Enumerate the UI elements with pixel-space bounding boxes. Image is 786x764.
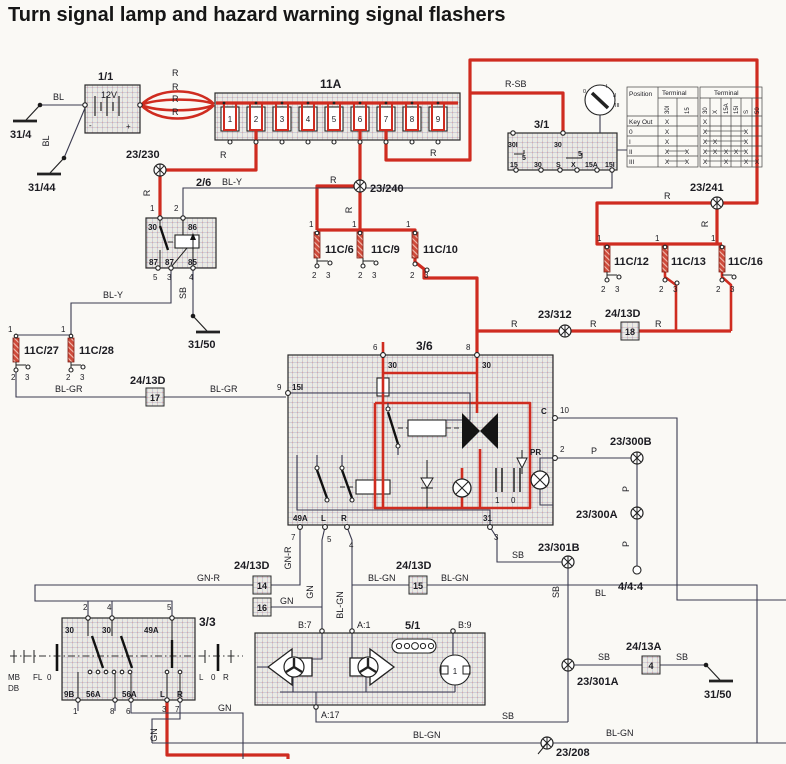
fuse-3: 3 (280, 115, 285, 124)
pin: 3 (167, 273, 172, 282)
mark: X (724, 149, 729, 156)
cluster-connector-strip (392, 639, 436, 653)
cap-0: 0 (511, 496, 516, 505)
fuse-5: 5 (332, 115, 337, 124)
node-23-241 (711, 197, 723, 209)
fuse-4: 4 (306, 115, 311, 124)
wire-label-r: R (172, 68, 179, 78)
flasher-coil-2 (356, 480, 390, 494)
node-label-23-240: 23/240 (370, 183, 404, 195)
table-row: II (629, 149, 633, 156)
terminal-4-4-4 (633, 566, 641, 574)
wire-label-gnr: GN-R (197, 573, 220, 583)
wire-label-gn: GN (218, 703, 232, 713)
wire-bly-relay-to-11c27 (16, 268, 171, 338)
relay-2-6-id: 2/6 (196, 177, 211, 189)
mark: X (665, 159, 670, 166)
mark: X (665, 139, 670, 146)
wire-label-bl: BL (53, 92, 64, 102)
pin: 1 (61, 325, 66, 334)
terminal-85: 85 (188, 258, 197, 267)
terminal-c: C (541, 407, 547, 416)
pin-a1: A:1 (357, 620, 371, 630)
pin: 3 (372, 271, 377, 280)
cluster-id: 5/1 (405, 620, 420, 632)
terminal-9b: 9B (64, 690, 74, 699)
wire-label-r: R (172, 107, 179, 117)
node-23-240 (354, 180, 366, 192)
pin: 1 (597, 234, 602, 243)
pin: 3 (730, 285, 735, 294)
battery-minus: - (89, 121, 92, 130)
battery-plus: + (126, 122, 131, 131)
table-col: 30 (703, 107, 709, 114)
label-mb: MB (8, 673, 20, 682)
pin: 2 (560, 445, 565, 454)
terminal-15a: 15A (585, 162, 598, 169)
pin: 6 (373, 343, 378, 352)
ground-31-44: 31/44 (28, 182, 56, 194)
terminal-30: 30 (482, 361, 491, 370)
ground-31-50-top-icon (193, 316, 220, 332)
pin: 8 (466, 343, 471, 352)
node-label-23-241: 23/241 (690, 182, 724, 194)
terminal-15i: 15I (292, 383, 303, 392)
wiring-diagram-page: Turn signal lamp and hazard warning sign… (0, 0, 786, 759)
mark: X (734, 149, 739, 156)
table-col: 30I (665, 105, 671, 114)
table-col: 50 (755, 107, 761, 114)
wire-label-r-rot: R (142, 189, 152, 196)
terminal-87: 87 (149, 258, 158, 267)
node-label-23-301b: 23/301B (538, 542, 580, 554)
fuse-2: 2 (254, 115, 259, 124)
pin: 3 (673, 285, 678, 294)
wire-label-p-rot: P (621, 541, 631, 547)
label-r: R (223, 673, 229, 682)
wire-label-r: R (172, 82, 179, 92)
inline-15: 15 (413, 581, 423, 591)
wire-label-gnr-rot: GN-R (283, 546, 293, 569)
pin: 1 (406, 220, 411, 229)
pin-b7: B:7 (298, 620, 312, 630)
label-11c28: 11C/28 (79, 345, 114, 357)
fuse-6: 6 (358, 115, 363, 124)
pin: 7 (291, 533, 296, 542)
pin: 7 (175, 705, 180, 714)
ground-31-50-top: 31/50 (188, 339, 216, 351)
terminal-56a: 56A (122, 690, 137, 699)
terminal-l: L (321, 514, 326, 523)
relay-2-6-coil (175, 235, 199, 248)
fuse-7: 7 (384, 115, 389, 124)
pin: 1 (309, 220, 314, 229)
wire-label-blgn: BL-GN (441, 573, 469, 583)
fuse-9: 9 (436, 115, 441, 124)
mark: X (703, 139, 708, 146)
fuse-1: 1 (228, 115, 233, 124)
terminal-31: 31 (483, 514, 492, 523)
wire-label-r: R (664, 191, 671, 201)
table-col: 15 (685, 107, 691, 114)
label-11c9: 11C/9 (371, 244, 400, 256)
flasher-id: 3/6 (416, 339, 433, 353)
pin: 9 (277, 383, 282, 392)
table-header-terminal: Terminal (714, 90, 739, 97)
node-label-23-301a: 23/301A (577, 676, 619, 688)
ground-31-4-icon (13, 105, 40, 121)
table-row: III (629, 159, 635, 166)
pin: 1 (352, 220, 357, 229)
terminal-5: 5 (578, 151, 582, 158)
label-24-13d: 24/13D (130, 375, 166, 387)
mark: X (744, 139, 749, 146)
mark: X (703, 149, 708, 156)
wire-label-sb: SB (598, 652, 610, 662)
inline-14: 14 (257, 581, 267, 591)
pin: 4 (349, 541, 354, 550)
wire-label-bl: BL (595, 588, 606, 598)
wire-label-sb-rot: SB (551, 586, 561, 598)
label-4-4-4: 4/4:4 (618, 581, 644, 593)
wire-label-blgr: BL-GR (55, 384, 83, 394)
pin: 2 (83, 603, 88, 612)
key-pos-2: II (613, 93, 617, 99)
fusebox-id: 11A (320, 77, 342, 91)
pin: 4 (189, 273, 194, 282)
node-23-300b (631, 452, 643, 464)
switch-3-3-id: 3/3 (199, 615, 216, 629)
pin: 5 (327, 535, 332, 544)
ground-31-50-bottom: 31/50 (704, 689, 732, 701)
wire-label-rsb: R-SB (505, 79, 527, 89)
flasher-lamp-2-icon (531, 471, 549, 489)
pin: 5 (153, 273, 158, 282)
pin: 1 (711, 234, 716, 243)
wire-sb-cluster-ground (316, 707, 568, 722)
mark: X (703, 129, 708, 136)
pin: 1 (73, 707, 78, 716)
terminal-pr: PR (530, 448, 541, 457)
wire-label-bly: BL-Y (222, 177, 242, 187)
pin: 2 (11, 373, 16, 382)
mark: X (665, 129, 670, 136)
pin: 3 (25, 373, 30, 382)
ignition-position-table (627, 87, 762, 167)
pin: 10 (560, 406, 569, 415)
connector-11c10 (412, 232, 418, 258)
flasher-lamp-icon (453, 479, 471, 497)
wire-label-p-rot: P (621, 486, 631, 492)
ground-31-50-bottom-icon (706, 665, 733, 681)
label-11c27: 11C/27 (24, 345, 59, 357)
mark: X (744, 159, 749, 166)
label-24-13a: 24/13A (626, 641, 662, 653)
connector-11c16 (719, 246, 725, 272)
wire-label-r: R (220, 150, 227, 160)
mark: X (724, 159, 729, 166)
label-l: L (199, 673, 204, 682)
page-title: Turn signal lamp and hazard warning sign… (8, 4, 506, 26)
inline-18: 18 (625, 327, 635, 337)
mark: X (713, 139, 718, 146)
mark: X (744, 149, 749, 156)
pin: 3 (615, 285, 620, 294)
key-pos-3: III (615, 103, 620, 109)
label-11c12: 11C/12 (614, 256, 649, 268)
table-col: 15I (734, 105, 740, 114)
wire-label-r: R (511, 319, 518, 329)
node-23-301b (562, 556, 574, 568)
terminal-30: 30 (102, 626, 111, 635)
pin-b9: B:9 (458, 620, 472, 630)
node-label-23-312: 23/312 (538, 309, 572, 321)
wiring-diagram: Turn signal lamp and hazard warning sign… (0, 0, 786, 759)
terminal-r: R (177, 690, 183, 699)
wire-label-blgn: BL-GN (368, 573, 396, 583)
terminal-30: 30 (388, 361, 397, 370)
node-label-23-300b: 23/300B (610, 436, 652, 448)
pin: 8 (110, 707, 115, 716)
terminal-30i: 30I (508, 142, 518, 149)
flasher-relay-coil (408, 420, 446, 436)
terminal-l: L (160, 690, 165, 699)
pin: 3 (424, 271, 429, 280)
inline-17: 17 (150, 393, 160, 403)
label-0: 0 (47, 673, 52, 682)
wire-label-blgn-rot: BL-GN (335, 591, 345, 619)
ground-31-4: 31/4 (10, 129, 32, 141)
ignition-id: 3/1 (534, 119, 549, 131)
wire-label-sb: SB (676, 652, 688, 662)
wire-label-r-rot: R (344, 206, 354, 213)
label-fl: FL (33, 673, 43, 682)
mark: X (685, 149, 690, 156)
terminal-30: 30 (554, 142, 562, 149)
mark: X (744, 129, 749, 136)
wire-label-sb: SB (512, 550, 524, 560)
pin: 2 (601, 285, 606, 294)
wire-label-blgn: BL-GN (606, 728, 634, 738)
terminal-30: 30 (65, 626, 74, 635)
node-23-230 (154, 164, 166, 176)
wire-label-r: R (430, 148, 437, 158)
wire-label-p: P (591, 446, 597, 456)
table-col: X (713, 110, 719, 114)
label-0: 0 (211, 673, 216, 682)
table-header-terminal: Terminal (662, 90, 687, 97)
node-label-23-300a: 23/300A (576, 509, 618, 521)
battery-id: 1/1 (98, 71, 113, 83)
terminal-r: R (341, 514, 347, 523)
mark: X (703, 159, 708, 166)
wire-label-sb: SB (502, 711, 514, 721)
wire-label-r: R (330, 175, 337, 185)
mark: X (755, 159, 760, 166)
connector-11c9 (357, 232, 363, 258)
node-23-312 (559, 325, 571, 337)
pin: 1 (655, 234, 660, 243)
label-24-13d: 24/13D (234, 560, 270, 572)
connector-11c12 (604, 246, 610, 272)
battery-voltage: 12V (101, 90, 117, 100)
terminal-5: 5 (522, 155, 526, 162)
table-col: S (744, 110, 750, 114)
wire-label-gn-rot: GN (149, 728, 159, 742)
pin: 3 (162, 705, 167, 714)
label-11c13: 11C/13 (671, 256, 706, 268)
mark: X (665, 149, 670, 156)
wire-gn-left (271, 527, 325, 631)
pin: 3 (80, 373, 85, 382)
gauge-1: 1 (453, 667, 458, 676)
node-23-301a (562, 659, 574, 671)
terminal-15: 15 (510, 162, 518, 169)
pin-a17: A:17 (321, 710, 340, 720)
pin: 2 (358, 271, 363, 280)
pin: 1 (8, 325, 13, 334)
mark: X (665, 119, 670, 126)
wire-label-blgr: BL-GR (210, 384, 238, 394)
table-row: 0 (629, 129, 633, 136)
terminal-86: 86 (188, 223, 197, 232)
wire-label-gn: GN (280, 596, 294, 606)
terminal-49a: 49A (144, 626, 159, 635)
terminal-x: X (571, 162, 576, 169)
mark: X (713, 149, 718, 156)
label-24-13d: 24/13D (605, 308, 641, 320)
pin: 6 (126, 707, 131, 716)
label-11c16: 11C/16 (728, 256, 763, 268)
terminal-15i: 15I (605, 162, 615, 169)
terminal-56a: 56A (86, 690, 101, 699)
pin: 3 (326, 271, 331, 280)
pin: 4 (107, 603, 112, 612)
label-11c6: 11C/6 (325, 244, 354, 256)
pin: 2 (66, 373, 71, 382)
node-label-23-208: 23/208 (556, 747, 590, 759)
pin: 2 (716, 285, 721, 294)
key-pos-0: 0 (583, 89, 586, 95)
node-23-300a (631, 507, 643, 519)
wire-label-bly: BL-Y (103, 290, 123, 300)
wire-label-bl-rot: BL (41, 135, 51, 146)
ground-31-44-icon (37, 158, 64, 174)
terminal-49a: 49A (293, 514, 308, 523)
table-col: 15A (724, 103, 730, 114)
cap-1: 1 (495, 496, 500, 505)
wire-label-r: R (172, 94, 179, 104)
wire-label-r-rot: R (700, 220, 710, 227)
terminal-30: 30 (534, 162, 542, 169)
inline-16: 16 (257, 603, 267, 613)
inline-4: 4 (648, 661, 653, 671)
pin: 1 (150, 204, 155, 213)
wire-label-r: R (655, 319, 662, 329)
wire-bl-grounds (40, 105, 85, 158)
connector-11c13 (662, 246, 668, 272)
wire-label-blgn: BL-GN (413, 730, 441, 740)
terminal-87: 87 (165, 258, 174, 267)
table-header-position: Position (629, 91, 653, 98)
table-row: I (629, 139, 631, 146)
connector-11c27 (13, 338, 19, 362)
pin: 3 (494, 533, 499, 542)
pin: 2 (174, 204, 179, 213)
node-label-23-230: 23/230 (126, 149, 160, 161)
fuse-8: 8 (410, 115, 415, 124)
table-row: Key Out (629, 119, 653, 126)
wire-label-r: R (590, 319, 597, 329)
wire-label-sb-rot: SB (178, 287, 188, 299)
terminal-s: S (556, 162, 561, 169)
mark: X (703, 119, 708, 126)
pin: 2 (659, 285, 664, 294)
pin: 5 (167, 603, 172, 612)
pin: 2 (410, 271, 415, 280)
terminal-30: 30 (148, 223, 157, 232)
connector-11c28 (68, 338, 74, 362)
label-11c10: 11C/10 (423, 244, 458, 256)
mark: X (685, 159, 690, 166)
label-24-13d: 24/13D (396, 560, 432, 572)
connector-11c6 (314, 232, 320, 258)
wire-label-gn-rot: GN (305, 585, 315, 599)
label-db: DB (8, 684, 19, 693)
pin: 2 (312, 271, 317, 280)
